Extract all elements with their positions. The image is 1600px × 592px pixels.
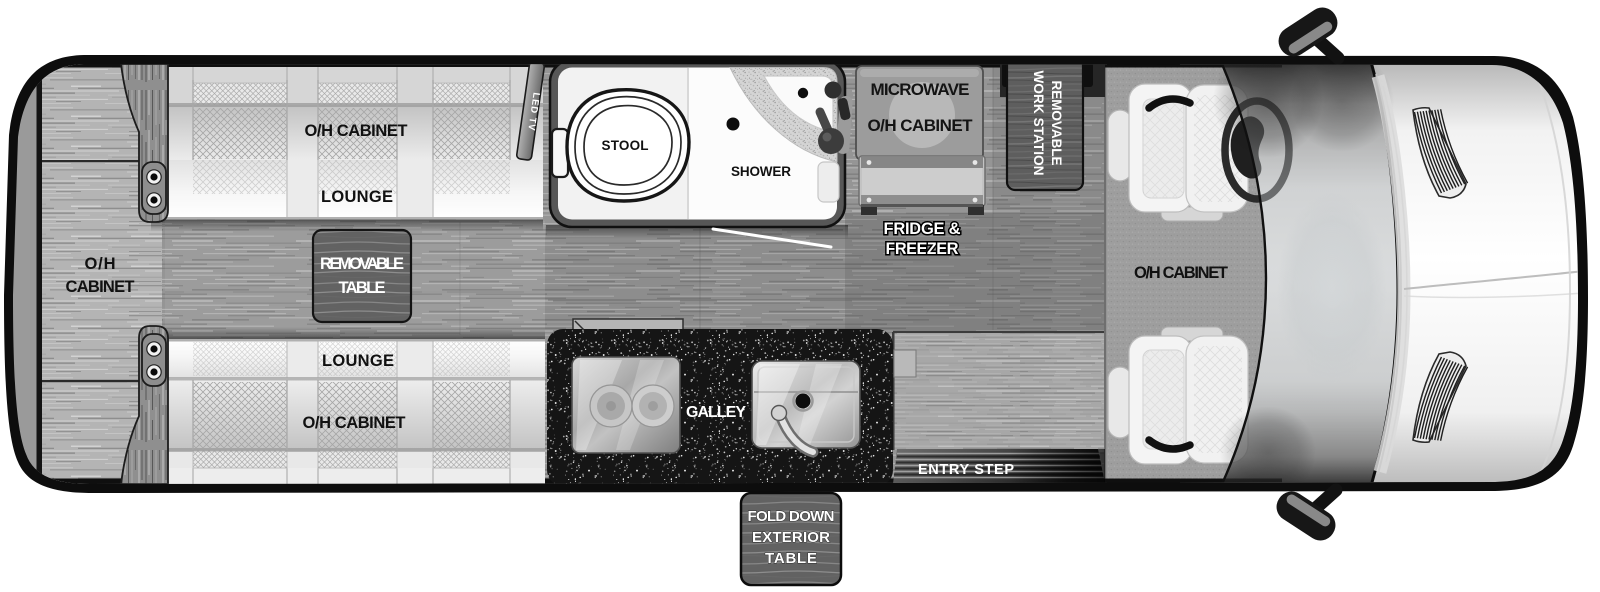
svg-text:REMOVABLE: REMOVABLE — [1049, 81, 1064, 166]
svg-text:STOOL: STOOL — [602, 138, 649, 153]
svg-text:SHOWER: SHOWER — [731, 164, 791, 179]
svg-text:FRIDGE &: FRIDGE & — [884, 220, 961, 238]
svg-text:GALLEY: GALLEY — [686, 404, 746, 421]
svg-text:REMOVABLE: REMOVABLE — [320, 255, 404, 273]
svg-text:CABINET: CABINET — [66, 278, 135, 296]
svg-text:O/H: O/H — [85, 255, 116, 273]
svg-text:EXTERIOR: EXTERIOR — [752, 529, 830, 546]
svg-text:MICROWAVE: MICROWAVE — [871, 80, 970, 99]
svg-text:FOLD DOWN: FOLD DOWN — [748, 508, 835, 525]
svg-text:TABLE: TABLE — [339, 279, 386, 297]
svg-text:LOUNGE: LOUNGE — [321, 188, 393, 206]
svg-text:WORK STATION: WORK STATION — [1031, 71, 1046, 176]
svg-text:O/H CABINET: O/H CABINET — [868, 116, 974, 135]
svg-text:O/H CABINET: O/H CABINET — [303, 414, 406, 432]
svg-text:O/H CABINET: O/H CABINET — [305, 122, 408, 140]
svg-text:FREEZER: FREEZER — [886, 240, 959, 258]
svg-text:ENTRY STEP: ENTRY STEP — [918, 462, 1014, 478]
svg-text:O/H CABINET: O/H CABINET — [1134, 264, 1228, 282]
svg-text:TABLE: TABLE — [765, 550, 817, 567]
svg-text:LOUNGE: LOUNGE — [322, 352, 394, 370]
